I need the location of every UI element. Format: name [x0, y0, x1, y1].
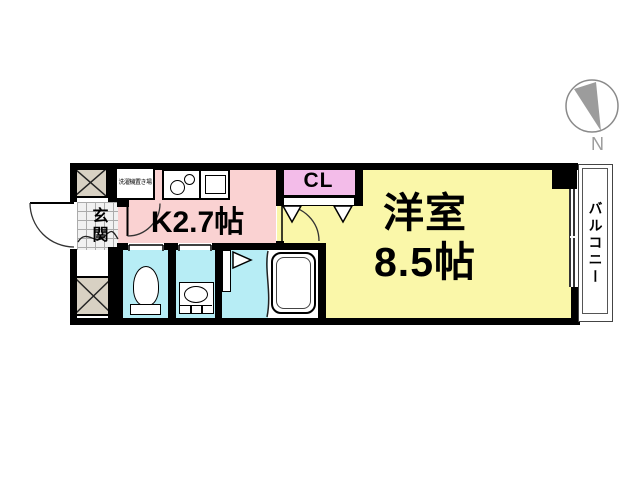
compass-north-icon: N [555, 70, 635, 162]
western-room-label: 洋室 8.5帖 [300, 189, 550, 287]
balcony-label-text: バルコニー [586, 201, 606, 286]
entrance-door-arc [30, 203, 74, 247]
wall-toilet-left [108, 247, 123, 318]
burner-small [184, 174, 195, 185]
western-room-name: 洋室 [300, 189, 550, 238]
wall-kitchen-wet-a [117, 243, 128, 250]
window-line-outer [569, 189, 571, 287]
kitchen-sink-icon [205, 175, 226, 194]
counter-divider [199, 171, 201, 198]
pipe-shaft-top [73, 167, 108, 198]
compass-graphic [555, 70, 635, 140]
laundry-label: 洗濯機置き場 [118, 180, 151, 187]
toilet-base [130, 304, 161, 315]
western-room-size: 8.5帖 [300, 238, 550, 287]
drawer-divider-1 [190, 306, 192, 313]
entrance-label: 玄関 [77, 202, 118, 250]
burner-large [170, 180, 185, 195]
wall-bottom [70, 318, 580, 325]
balcony-label: バルコニー [579, 165, 612, 321]
wall-left-lower [70, 249, 77, 325]
floor-plan: バルコニー 洗濯機置き場 [0, 0, 640, 480]
wall-left-upper [70, 163, 77, 202]
wall-washroom-bathroom [215, 247, 222, 318]
washbasin-bowl [184, 286, 208, 303]
bathroom-door-panel [222, 250, 231, 292]
window-line-mid [573, 189, 575, 287]
compass-north-label: N [591, 134, 604, 155]
kitchen-label: K2.7帖 [130, 206, 265, 240]
wall-kitchen-wet-b [164, 243, 178, 250]
wall-kitchen-room-lower [276, 241, 284, 250]
wall-toilet-washroom [168, 247, 176, 318]
entrance-label-text: 玄関 [86, 207, 110, 245]
washbasin-icon [179, 282, 214, 314]
window-mullion-tick [570, 236, 578, 238]
closet-label: CL [282, 169, 355, 193]
toilet-icon [133, 266, 159, 306]
crossed-box-icon [75, 278, 112, 314]
stove-burners-icon [164, 171, 199, 198]
crossed-box-icon [75, 169, 106, 196]
drawer-divider-2 [201, 306, 203, 313]
washbasin-drawers [180, 305, 212, 313]
balcony: バルコニー [578, 164, 613, 322]
kitchen-counter [162, 169, 230, 200]
pillar-top-right [552, 163, 577, 189]
laundry-space: 洗濯機置き場 [115, 167, 155, 200]
